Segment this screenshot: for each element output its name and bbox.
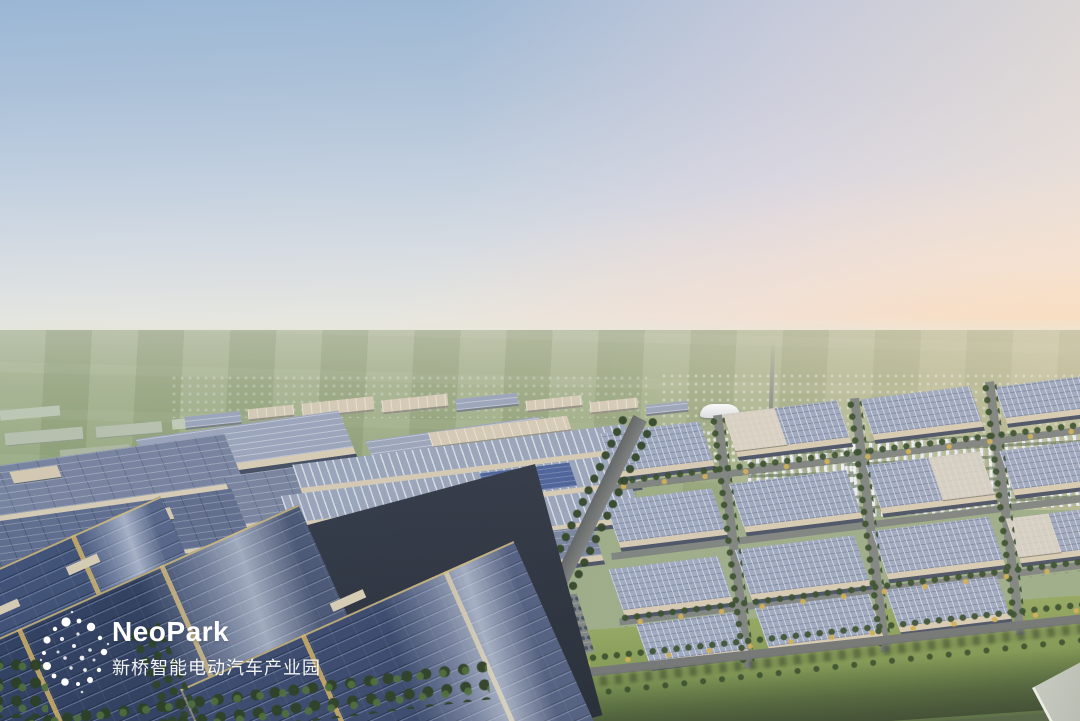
warehouse — [729, 470, 861, 527]
logo-dots-icon — [38, 608, 112, 696]
warehouse — [999, 438, 1080, 489]
sky-gradient — [0, 0, 1080, 348]
rooftop-section — [928, 451, 994, 500]
warehouse — [994, 375, 1080, 418]
neopark-aerial-rendering: NeoPark 新桥智能电动汽车产业园 — [0, 0, 1080, 721]
warehouse — [866, 451, 995, 508]
logo-subtitle: 新桥智能电动汽车产业园 — [112, 654, 321, 680]
rooftop-section — [723, 408, 787, 451]
neopark-logo: NeoPark 新桥智能电动汽车产业园 — [38, 598, 338, 698]
logo-name: NeoPark — [112, 616, 229, 648]
rooftop-penthouse — [9, 465, 61, 483]
